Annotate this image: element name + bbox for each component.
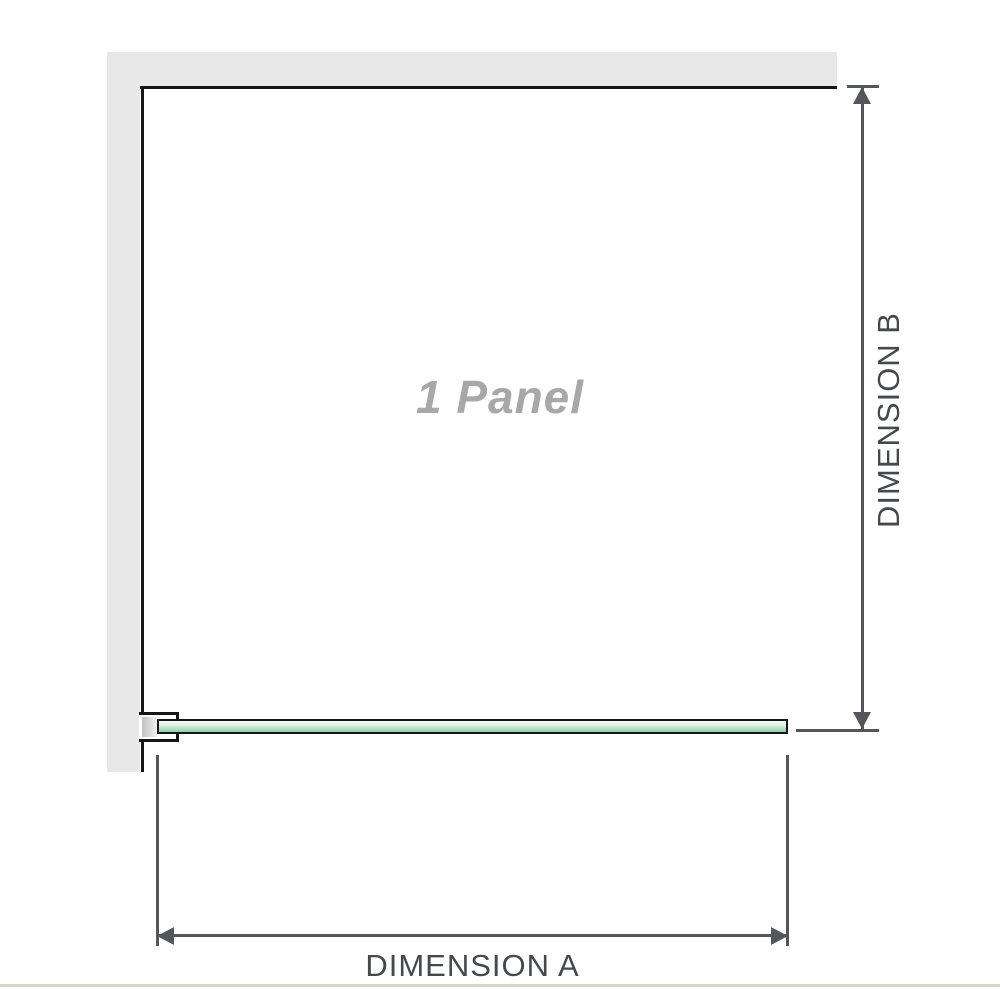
arrow-left-icon	[157, 927, 174, 945]
wall-segment-top	[107, 52, 837, 86]
dimension-a-extension-left	[156, 755, 159, 946]
dimension-a-line	[158, 934, 788, 937]
bracket-clamp-pad	[142, 717, 157, 737]
dimension-b-line	[861, 88, 864, 729]
panel-edge-left	[141, 86, 144, 772]
panel-edge-top	[140, 86, 837, 89]
page-divider-line	[0, 984, 1000, 987]
dimension-a-extension-right	[786, 755, 789, 946]
dimension-a-label: DIMENSION A	[157, 948, 788, 984]
dimension-b-tick-bottom	[796, 729, 879, 732]
dimension-b-label: DIMENSION B	[871, 312, 907, 528]
shower-panel-dimension-diagram: 1 Panel DIMENSION B DIMENSION A	[0, 0, 1000, 1000]
glass-panel-bar	[157, 719, 788, 734]
arrow-down-icon	[853, 712, 871, 729]
panel-count-label: 1 Panel	[416, 370, 584, 424]
arrow-up-icon	[853, 87, 871, 104]
arrow-right-icon	[771, 927, 788, 945]
wall-segment-left	[107, 52, 140, 772]
